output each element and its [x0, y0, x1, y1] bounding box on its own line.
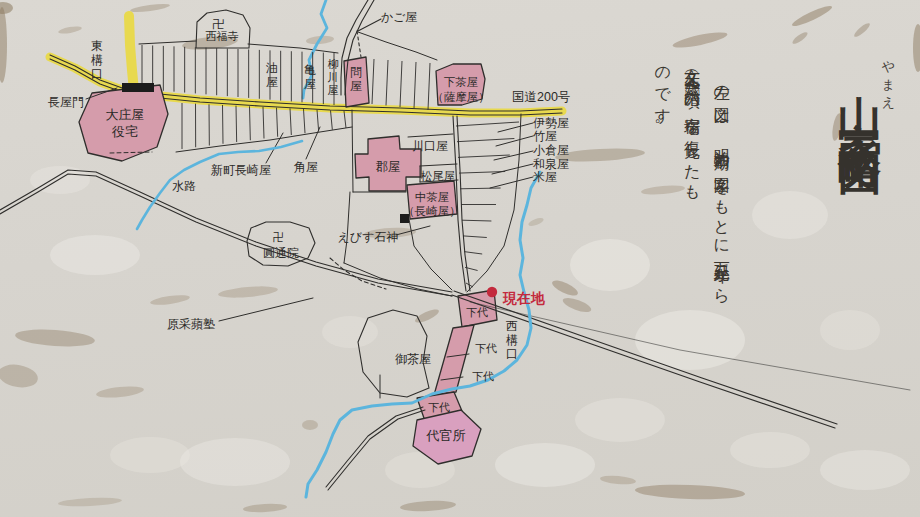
map-label: 水路 [172, 179, 196, 193]
east-strip-divider [428, 63, 430, 110]
stain [600, 474, 637, 485]
map-label: 下代 [466, 306, 488, 318]
map-label: 和泉屋 [533, 157, 569, 171]
stain [243, 503, 287, 513]
map-label: 柳川屋 [328, 58, 339, 96]
yellow-branch-road [129, 16, 134, 91]
south-strip-divider [344, 111, 346, 128]
map-label: 伊勢屋 [533, 116, 569, 130]
stain [322, 316, 378, 348]
stain [218, 284, 279, 299]
map-label: 松尾屋 [421, 170, 456, 182]
stain [791, 30, 809, 45]
map-label: 圓通院 [263, 246, 299, 260]
stain [50, 235, 140, 275]
stain [58, 25, 83, 35]
kagoya-dashed-path [357, 31, 361, 57]
map-label: 西構口 [506, 319, 518, 361]
south-strip-divider [263, 107, 264, 139]
iseya-strip-divider [457, 139, 514, 142]
stain [790, 3, 833, 29]
map-label: 小倉屋 [533, 143, 569, 157]
map-label: 油屋 [266, 61, 278, 89]
stain [30, 166, 90, 194]
iseya-strip-divider [462, 220, 491, 221]
kawaguchiya-parcel-line [408, 134, 453, 137]
stain [852, 21, 871, 38]
map-label: 新町長崎屋 [211, 163, 271, 177]
map-label: 卍 [273, 231, 284, 243]
map-label: 下代 [428, 401, 450, 413]
stain [561, 295, 593, 315]
south-strip-divider [304, 109, 306, 133]
kagoya-leader-line [358, 19, 381, 31]
stain [730, 432, 810, 468]
stain [110, 437, 190, 473]
east-strip-divider [400, 61, 402, 107]
south-strip-divider [331, 110, 333, 129]
map-label: 角屋 [293, 160, 318, 174]
stain [180, 438, 290, 486]
title-furigana: やまえ [881, 52, 896, 105]
kadoya-leader-line [306, 127, 320, 159]
stain [527, 216, 544, 227]
description-column: のです。 [648, 56, 678, 494]
stain [130, 2, 170, 14]
title-rest: 宿略図 [835, 99, 884, 129]
south-strip-divider [250, 106, 251, 140]
south-strip-divider [317, 110, 319, 132]
izumiya-leader-line [492, 164, 533, 174]
map-description: 左の図は、明治初期の字図をもとに万延元年から 文久元年（一八六〇〜六一）頃の宿場… [648, 56, 737, 494]
map-label: 長屋門 [48, 95, 84, 109]
map-label: 下代 [475, 342, 497, 354]
komeya-leader-line [490, 177, 533, 188]
block-boundary [344, 192, 350, 263]
stain [495, 443, 595, 487]
map-label: 米屋 [533, 170, 557, 184]
iseya-strip-divider [458, 155, 510, 157]
nagayamon-gate [122, 83, 154, 92]
stain [96, 385, 145, 400]
stain [0, 7, 7, 83]
signboard-photo: 東構口長屋門大庄屋役宅水路新町長崎屋角屋油屋亀屋柳川屋問屋かご屋卍西福寺下茶屋（… [0, 0, 920, 517]
parcel-top-boundary [248, 44, 338, 53]
iseya-strip-divider [460, 188, 501, 189]
stain [570, 239, 650, 291]
map-label: 竹屋 [533, 129, 557, 143]
map-label: 亀屋 [304, 63, 316, 91]
map-label: 下代 [472, 370, 494, 382]
stain [58, 496, 122, 507]
current-location-dot [487, 287, 497, 297]
description-column: 左の図は、明治初期の字図をもとに万延元年から [707, 56, 737, 494]
map-label: かご屋 [381, 10, 418, 24]
map-label: 国道200号 [512, 90, 570, 104]
iseya-leader-line [498, 123, 533, 132]
stain [913, 24, 920, 72]
harasaihin-leader-line [219, 298, 313, 321]
map-label: 卍 [212, 17, 224, 31]
takeya-leader-line [496, 136, 533, 146]
iseya-strip-divider [463, 236, 487, 238]
east-strip-divider [386, 60, 388, 106]
map-label: 郡屋 [376, 160, 401, 174]
stain [150, 293, 191, 306]
map-label: 東構口 [91, 39, 103, 81]
stain [820, 450, 910, 490]
map-label: えびす石神 [338, 230, 399, 244]
description-column: 文久元年（一八六〇〜六一）頃の宿場を復元したも [678, 56, 708, 494]
map-label: 現在地 [502, 290, 545, 306]
map-label: 西福寺 [206, 30, 239, 42]
south-strip-divider [290, 108, 291, 135]
title-ruby-base: 山家 [835, 52, 884, 105]
map-label: 問屋 [350, 65, 362, 93]
south-strip-divider [236, 106, 237, 142]
parcel-top-curve [358, 32, 437, 60]
map-label: 御茶屋 [395, 352, 431, 366]
map-canvas: 東構口長屋門大庄屋役宅水路新町長崎屋角屋油屋亀屋柳川屋問屋かご屋卍西福寺下茶屋（… [0, 0, 920, 517]
iseya-strip-divider [464, 252, 482, 254]
building-gedai-2 [434, 325, 474, 395]
page-title: 山家やまえ宿略図 [830, 52, 896, 382]
block-boundary [352, 110, 353, 192]
south-strip-divider [277, 108, 278, 137]
matsuoya-parcel-line [420, 164, 457, 166]
east-strip-divider [372, 59, 374, 104]
east-strip-divider [414, 62, 416, 109]
stain [400, 500, 456, 513]
map-label: 川口屋 [412, 139, 448, 153]
stain [15, 327, 96, 349]
stain [302, 420, 318, 430]
stain [0, 362, 40, 391]
stain [672, 29, 729, 50]
stain [550, 278, 580, 299]
stream-west-suiro [137, 141, 302, 229]
map-label: 原采蘋塾 [167, 317, 215, 331]
stain [752, 191, 828, 239]
iseya-strip-divider [456, 122, 519, 126]
map-label: 代官所 [426, 428, 466, 443]
vertical-road [457, 116, 470, 291]
south-strip-divider [223, 105, 224, 144]
